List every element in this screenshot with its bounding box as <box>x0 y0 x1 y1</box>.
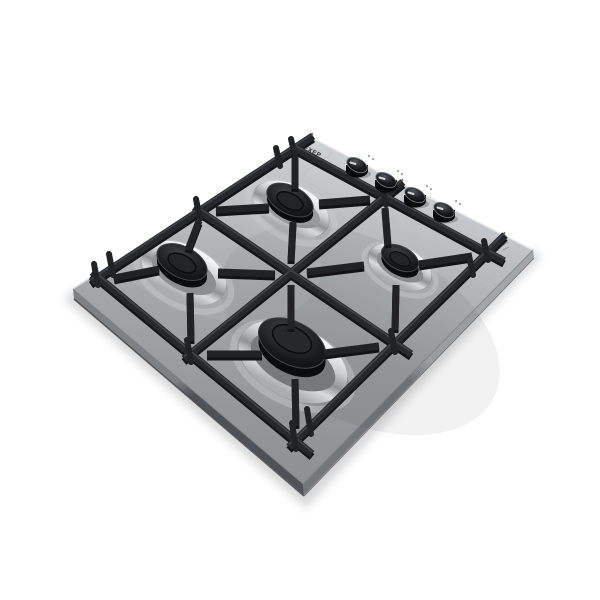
mark-dot <box>401 173 403 175</box>
mark-dot <box>397 170 399 172</box>
mark-dot <box>430 188 432 190</box>
corner-spike <box>94 264 98 285</box>
corner-spike <box>484 241 488 260</box>
corner-spike <box>276 148 280 166</box>
corner-spike <box>291 139 295 156</box>
corner-spike <box>196 199 200 219</box>
mark-dot <box>372 158 374 160</box>
corner-spike <box>109 254 113 275</box>
corner-spike <box>307 409 311 434</box>
corner-spike <box>187 340 191 362</box>
product-photo-canvas: EXEP <box>0 0 600 600</box>
corner-spike <box>292 423 296 449</box>
mark-dot <box>426 185 428 187</box>
corner-spike <box>469 256 473 275</box>
mark-dot <box>459 203 461 205</box>
mark-dot <box>455 200 457 202</box>
gas-hob-photo: EXEP <box>0 0 600 600</box>
mark-dot <box>368 155 370 157</box>
corner-spike <box>391 331 395 352</box>
